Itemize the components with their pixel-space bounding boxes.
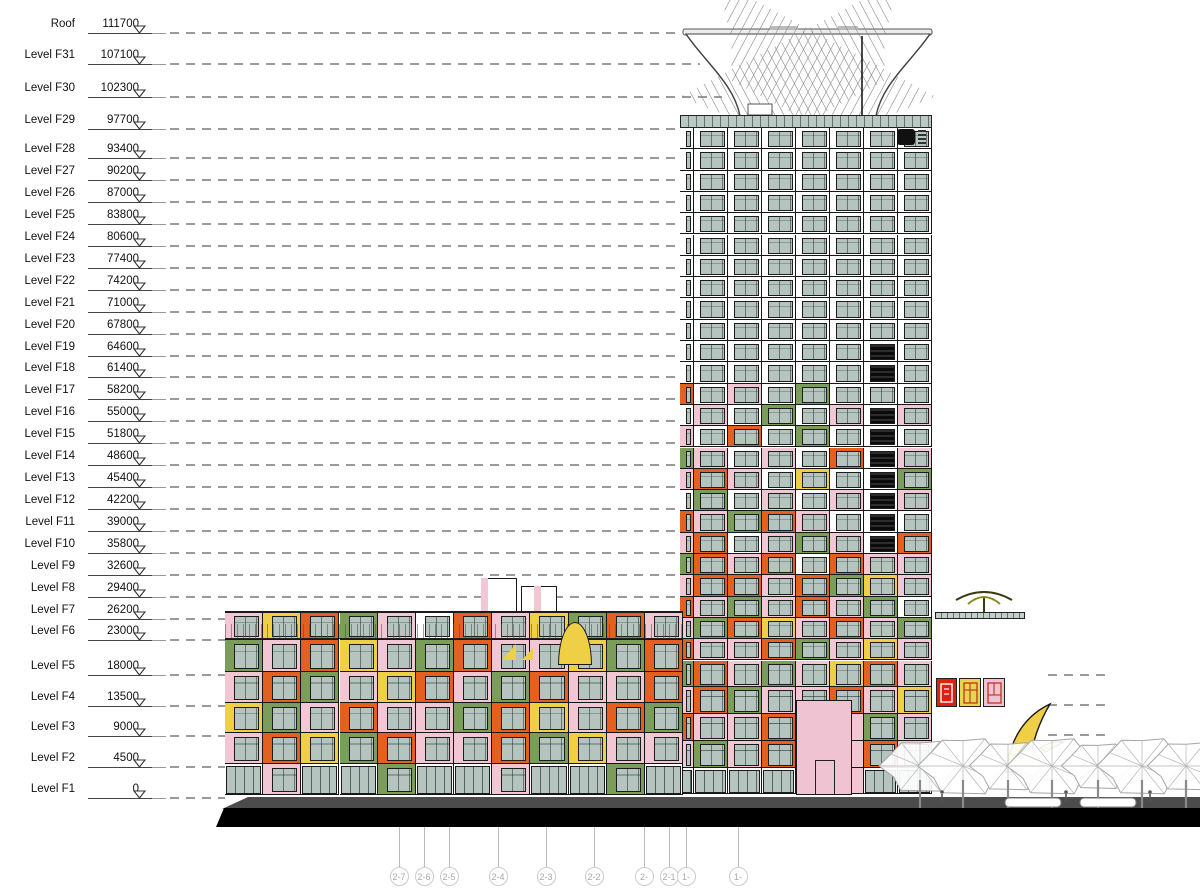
grid-bubble: 2-4 <box>489 867 508 886</box>
grid-bubble: 2-1 <box>660 867 679 886</box>
grid-bubble: 2-3 <box>537 867 556 886</box>
grid-bubble: 1-10 <box>729 867 748 886</box>
grid-bubble: 2-2 <box>585 867 604 886</box>
street-trees <box>0 0 1200 888</box>
grid-bubble: 2-6 <box>415 867 434 886</box>
grid-bubble: 2-5 <box>440 867 459 886</box>
elevation-drawing: Roof111700Level F31107100Level F30102300… <box>0 0 1200 888</box>
grid-bubble: 2-1/1 <box>635 867 654 886</box>
grid-bubble: 1-11 <box>677 867 696 886</box>
grid-bubble: 2-7 <box>390 867 409 886</box>
